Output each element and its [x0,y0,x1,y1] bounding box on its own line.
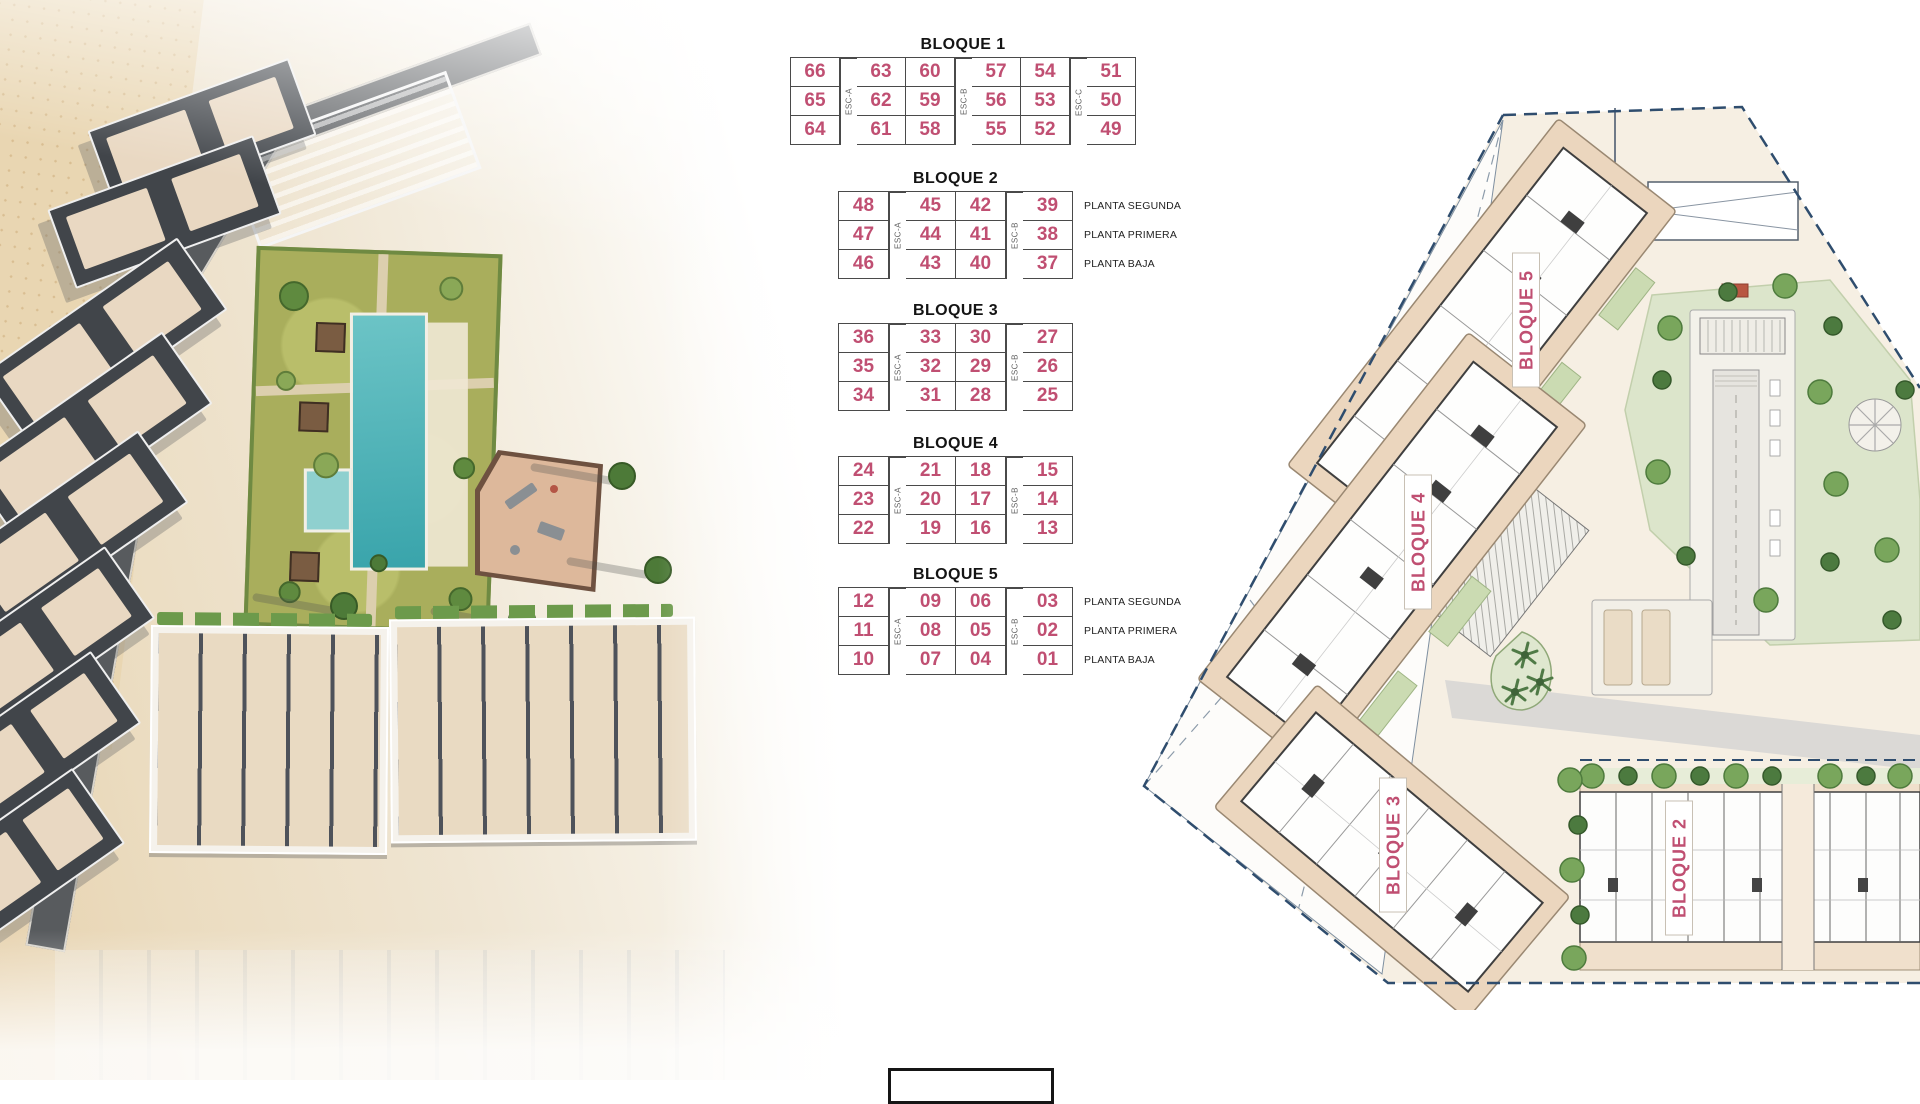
unit-number-cell: 47 [839,221,889,250]
unit-number-cell: 17 [956,486,1006,515]
white-fade [0,0,940,1080]
unit-number-cell: 56 [972,87,1021,116]
unit-number-cell: 13 [1023,515,1073,544]
unit-number-cell: 53 [1021,87,1070,116]
unit-number-cell: 11 [839,617,889,646]
unit-number-cell: 66 [791,58,840,87]
svg-text:BLOQUE 3: BLOQUE 3 [1384,795,1404,895]
aerial-render [0,0,940,1080]
unit-number-cell: 22 [839,515,889,544]
stair-label-cell: ESC-B [1006,192,1023,279]
plan-label-bloque-3: BLOQUE 3 [1380,778,1407,912]
unit-table-bloque-2: BLOQUE 2484746ESC-A454443424140ESC-B3938… [838,170,1073,279]
unit-number-cell: 38 [1023,221,1073,250]
stair-label-cell: ESC-B [1006,457,1023,544]
unit-number-cell: 52 [1021,116,1070,145]
stair-label-cell: ESC-A [889,588,906,675]
unit-number-cell: 48 [839,192,889,221]
unit-number-cell: 41 [956,221,1006,250]
unit-number-cell: 23 [839,486,889,515]
stair-label-cell: ESC-A [889,457,906,544]
unit-number-cell: 19 [906,515,956,544]
sports-court [1592,600,1712,695]
unit-number-cell: 12 [839,588,889,617]
plan-label-bloque-4: BLOQUE 4 [1405,475,1432,609]
unit-number-cell: 25 [1023,382,1073,411]
unit-number-cell: 49 [1087,116,1136,145]
unit-number-cell: 58 [906,116,955,145]
site-plan: BLOQUE 5 BLOQUE 4 BLOQUE 3 BLOQUE 2 [1130,80,1920,1010]
unit-number-cell: 03 [1023,588,1073,617]
unit-number-cell: 45 [906,192,956,221]
unit-number-cell: 33 [906,324,956,353]
stair-label-cell: ESC-A [889,192,906,279]
unit-number-cell: 36 [839,324,889,353]
stair-label-cell: ESC-B [1006,588,1023,675]
unit-number-cell: 04 [956,646,1006,675]
stair-label-cell: ESC-C [1070,58,1087,145]
unit-number-cell: 27 [1023,324,1073,353]
unit-grid: 121110ESC-A090807060504ESC-B030201 [838,587,1073,675]
stair-label-cell: ESC-A [840,58,857,145]
paving-rosette [1849,399,1901,451]
unit-number-cell: 07 [906,646,956,675]
unit-number-cell: 14 [1023,486,1073,515]
unit-number-cell: 40 [956,250,1006,279]
unit-grid: 242322ESC-A212019181716ESC-B151413 [838,456,1073,544]
unit-number-cell: 21 [906,457,956,486]
unit-number-cell: 16 [956,515,1006,544]
svg-text:BLOQUE 5: BLOQUE 5 [1517,270,1537,370]
unit-number-cell: 51 [1087,58,1136,87]
unit-table-bloque-3: BLOQUE 3363534ESC-A333231302928ESC-B2726… [838,302,1073,411]
white-fade [0,930,940,1080]
legend-box-partial [888,1068,1054,1104]
unit-number-cell: 18 [956,457,1006,486]
unit-number-cell: 31 [906,382,956,411]
unit-table-bloque-5: BLOQUE 5121110ESC-A090807060504ESC-B0302… [838,566,1073,675]
unit-number-cell: 02 [1023,617,1073,646]
unit-number-cell: 32 [906,353,956,382]
unit-number-cell: 46 [839,250,889,279]
unit-number-cell: 15 [1023,457,1073,486]
svg-text:BLOQUE 4: BLOQUE 4 [1409,492,1429,592]
unit-number-cell: 35 [839,353,889,382]
stair-label-cell: ESC-B [955,58,972,145]
plan-label-bloque-2: BLOQUE 2 [1666,801,1693,935]
unit-grid: 484746ESC-A454443424140ESC-B393837 [838,191,1073,279]
unit-grid: 363534ESC-A333231302928ESC-B272625 [838,323,1073,411]
unit-table-bloque-4: BLOQUE 4242322ESC-A212019181716ESC-B1514… [838,435,1073,544]
unit-number-cell: 57 [972,58,1021,87]
brochure-page: { "page": {"width": 1920, "height": 1080… [0,0,1920,1080]
unit-number-cell: 59 [906,87,955,116]
unit-number-cell: 42 [956,192,1006,221]
unit-grid: 666564ESC-A636261605958ESC-B575655545352… [790,57,1136,145]
unit-number-cell: 30 [956,324,1006,353]
unit-number-cell: 09 [906,588,956,617]
unit-number-cell: 39 [1023,192,1073,221]
block-table-title: BLOQUE 1 [790,36,1136,54]
block-table-title: BLOQUE 2 [838,170,1073,188]
stair-label-cell: ESC-B [1006,324,1023,411]
unit-number-cell: 01 [1023,646,1073,675]
unit-number-cell: 29 [956,353,1006,382]
unit-number-cell: 61 [857,116,906,145]
unit-number-cell: 34 [839,382,889,411]
block-table-title: BLOQUE 4 [838,435,1073,453]
unit-number-cell: 55 [972,116,1021,145]
svg-text:BLOQUE 2: BLOQUE 2 [1670,818,1690,918]
unit-number-cell: 65 [791,87,840,116]
unit-table-bloque-1: BLOQUE 1666564ESC-A636261605958ESC-B5756… [790,36,1136,145]
unit-number-cell: 08 [906,617,956,646]
unit-number-cell: 20 [906,486,956,515]
unit-number-cell: 37 [1023,250,1073,279]
unit-number-cell: 10 [839,646,889,675]
building-bloque-2 [1580,768,1920,970]
unit-number-cell: 28 [956,382,1006,411]
unit-number-cell: 44 [906,221,956,250]
plan-label-bloque-5: BLOQUE 5 [1513,253,1540,387]
plan-pool-area [1690,284,1795,640]
unit-number-cell: 64 [791,116,840,145]
unit-number-cell: 24 [839,457,889,486]
unit-number-cell: 62 [857,87,906,116]
unit-number-cell: 63 [857,58,906,87]
stair-label-cell: ESC-A [889,324,906,411]
unit-number-cell: 50 [1087,87,1136,116]
unit-number-cell: 60 [906,58,955,87]
block-table-title: BLOQUE 5 [838,566,1073,584]
unit-number-cell: 05 [956,617,1006,646]
unit-number-cell: 54 [1021,58,1070,87]
unit-number-cell: 06 [956,588,1006,617]
unit-number-cell: 43 [906,250,956,279]
unit-number-cell: 26 [1023,353,1073,382]
block-table-title: BLOQUE 3 [838,302,1073,320]
